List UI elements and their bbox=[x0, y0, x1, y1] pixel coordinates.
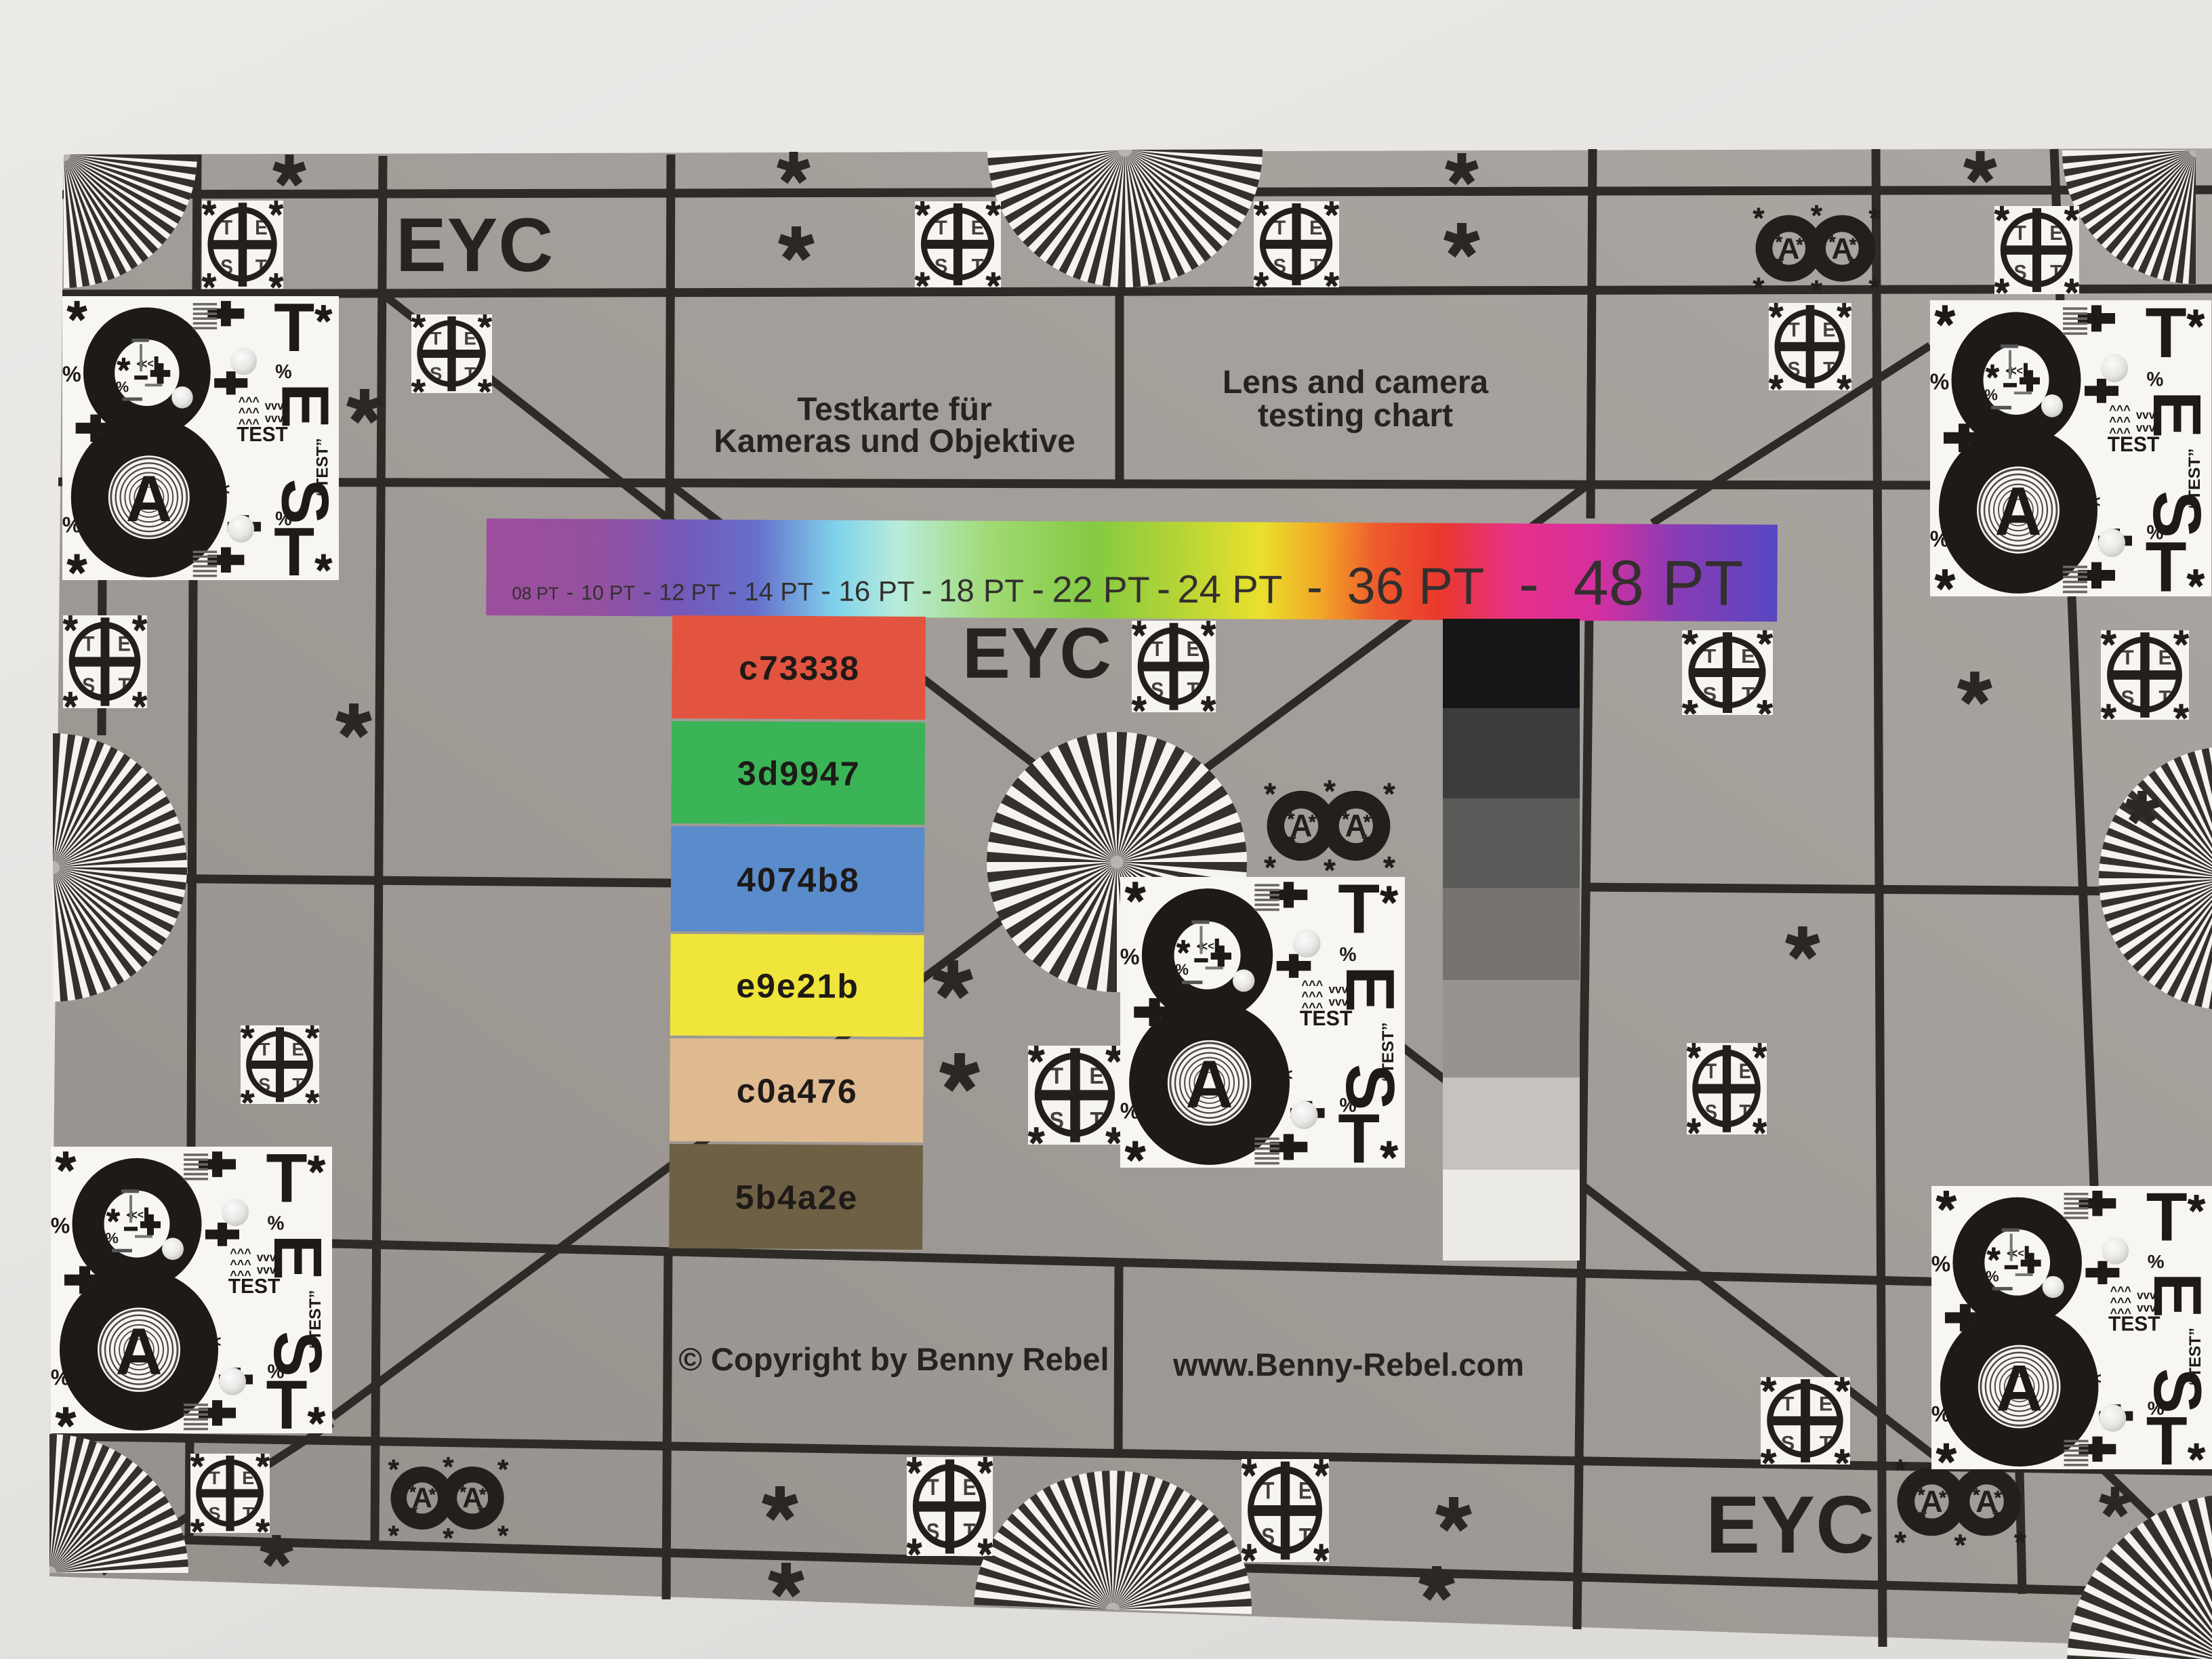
svg-text:≪<: ≪< bbox=[2005, 365, 2023, 377]
svg-text:“TEST”: “TEST” bbox=[306, 1290, 325, 1349]
svg-text:^^^: ^^^ bbox=[2109, 426, 2131, 441]
svg-text:≪<: ≪< bbox=[1266, 1066, 1293, 1084]
svg-text:vvv: vvv bbox=[2137, 1289, 2156, 1302]
svg-text:%: % bbox=[116, 378, 129, 395]
svg-text:^^^: ^^^ bbox=[1301, 1000, 1323, 1014]
svg-text:%: % bbox=[1120, 1098, 1140, 1123]
svg-text:Kameras und Objektive: Kameras und Objektive bbox=[714, 424, 1076, 459]
svg-text:“TEST”: “TEST” bbox=[2186, 1328, 2205, 1386]
svg-text:≪<: ≪< bbox=[136, 359, 154, 370]
svg-text:T: T bbox=[274, 514, 314, 590]
svg-text:14 PT: 14 PT bbox=[744, 578, 813, 607]
svg-text:-: - bbox=[1032, 569, 1044, 610]
svg-text:T: T bbox=[274, 290, 314, 366]
svg-text:≪<: ≪< bbox=[2007, 1248, 2024, 1260]
svg-text:vvv: vvv bbox=[257, 1263, 276, 1276]
svg-text:36 PT: 36 PT bbox=[1347, 557, 1484, 615]
svg-text:A: A bbox=[115, 1314, 162, 1389]
svg-text:EYC: EYC bbox=[1706, 1479, 1875, 1570]
svg-text:≪<: ≪< bbox=[126, 1209, 144, 1221]
svg-text:%: % bbox=[1984, 386, 1998, 404]
svg-text:18 PT: 18 PT bbox=[939, 572, 1024, 609]
svg-text:-: - bbox=[567, 580, 574, 605]
svg-text:T: T bbox=[2146, 1179, 2188, 1256]
svg-text:“TEST”: “TEST” bbox=[1379, 1022, 1397, 1082]
svg-text:^^^: ^^^ bbox=[230, 1269, 251, 1282]
svg-text:T: T bbox=[2146, 1404, 2188, 1480]
svg-text:Testkarte für: Testkarte für bbox=[797, 392, 991, 428]
svg-text:%: % bbox=[62, 362, 81, 386]
svg-text:T: T bbox=[1338, 869, 1380, 948]
svg-text:%: % bbox=[1986, 1268, 1999, 1285]
svg-text:A: A bbox=[1185, 1046, 1233, 1122]
svg-text:© Copyright by Benny Rebel: © Copyright by Benny Rebel bbox=[678, 1341, 1109, 1377]
svg-text:T: T bbox=[2145, 527, 2186, 607]
svg-text:vvv: vvv bbox=[265, 412, 284, 425]
svg-text:24 PT: 24 PT bbox=[1177, 567, 1282, 612]
svg-text:10 PT: 10 PT bbox=[581, 582, 635, 605]
svg-text:%: % bbox=[1120, 944, 1140, 969]
svg-text:T: T bbox=[266, 1141, 307, 1217]
svg-text:≪<: ≪< bbox=[2074, 493, 2100, 512]
svg-text:22 PT: 22 PT bbox=[1052, 569, 1149, 611]
svg-text:-: - bbox=[1157, 566, 1170, 611]
svg-text:Lens and camera: Lens and camera bbox=[1223, 365, 1488, 401]
svg-text:A: A bbox=[126, 462, 172, 535]
svg-text:%: % bbox=[62, 512, 81, 537]
svg-text:-: - bbox=[821, 574, 831, 607]
svg-text:≪<: ≪< bbox=[194, 1332, 221, 1351]
svg-text:vvv: vvv bbox=[1328, 995, 1348, 1008]
svg-text:3d9947: 3d9947 bbox=[737, 754, 861, 793]
svg-text:%: % bbox=[1175, 962, 1189, 979]
svg-text:vvv: vvv bbox=[2136, 420, 2156, 434]
svg-text:vvv: vvv bbox=[265, 399, 284, 412]
svg-text:48 PT: 48 PT bbox=[1573, 547, 1743, 619]
svg-text:12 PT: 12 PT bbox=[659, 579, 720, 605]
svg-text:T: T bbox=[1338, 1099, 1380, 1178]
svg-text:A: A bbox=[1996, 1352, 2043, 1425]
svg-text:www.Benny-Rebel.com: www.Benny-Rebel.com bbox=[1172, 1347, 1524, 1382]
svg-text:≪<: ≪< bbox=[204, 480, 230, 499]
svg-text:-: - bbox=[1307, 560, 1323, 614]
svg-text:16 PT: 16 PT bbox=[838, 575, 914, 608]
svg-text:EYC: EYC bbox=[962, 613, 1112, 693]
svg-text:vvv: vvv bbox=[257, 1250, 276, 1264]
svg-text:-: - bbox=[1519, 549, 1539, 617]
svg-text:%: % bbox=[105, 1230, 119, 1247]
svg-text:^^^: ^^^ bbox=[2110, 1306, 2132, 1319]
svg-text:-: - bbox=[728, 577, 737, 607]
svg-text:%: % bbox=[51, 1213, 70, 1237]
svg-text:4074b8: 4074b8 bbox=[737, 861, 860, 899]
svg-text:%: % bbox=[1931, 1252, 1950, 1276]
svg-text:T: T bbox=[266, 1367, 307, 1443]
svg-text:vvv: vvv bbox=[2137, 1301, 2156, 1314]
svg-text:vvv: vvv bbox=[2136, 407, 2156, 422]
svg-text:T: T bbox=[2145, 293, 2186, 373]
svg-text:5b4a2e: 5b4a2e bbox=[735, 1178, 859, 1216]
svg-text:%: % bbox=[51, 1365, 70, 1389]
svg-text:c0a476: c0a476 bbox=[737, 1072, 858, 1111]
svg-text:vvv: vvv bbox=[1328, 982, 1348, 996]
svg-text:c73338: c73338 bbox=[739, 649, 860, 688]
svg-text:-: - bbox=[921, 572, 932, 609]
svg-text:%: % bbox=[1931, 1401, 1950, 1426]
svg-text:%: % bbox=[1930, 526, 1949, 552]
svg-text:≪<: ≪< bbox=[1196, 940, 1214, 952]
svg-text:“TEST”: “TEST” bbox=[314, 438, 332, 496]
svg-text:A: A bbox=[1994, 473, 2041, 550]
svg-text:testing chart: testing chart bbox=[1258, 398, 1453, 434]
svg-text:^^^: ^^^ bbox=[239, 417, 260, 430]
svg-text:“TEST”: “TEST” bbox=[2186, 448, 2204, 509]
svg-text:≪<: ≪< bbox=[2075, 1370, 2102, 1388]
svg-text:%: % bbox=[1930, 369, 1949, 394]
svg-text:e9e21b: e9e21b bbox=[736, 967, 859, 1006]
svg-text:08 PT: 08 PT bbox=[512, 583, 559, 603]
svg-text:EYC: EYC bbox=[396, 203, 554, 287]
svg-text:-: - bbox=[643, 577, 651, 605]
